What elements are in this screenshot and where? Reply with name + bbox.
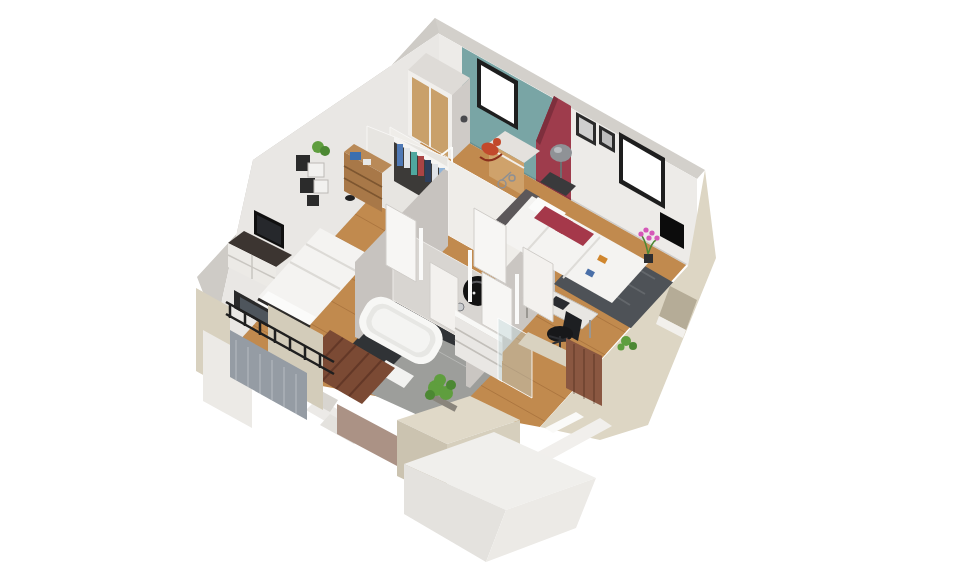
- door-post-1: [419, 228, 423, 280]
- shoes: [345, 195, 355, 201]
- floorplan-svg: [0, 0, 960, 576]
- small-toy: [461, 116, 468, 123]
- white-books: [363, 159, 371, 165]
- floorplan-render: [0, 0, 960, 576]
- horse-head: [493, 138, 501, 146]
- lower-block-left: [337, 404, 397, 466]
- wardrobe-door-left: [412, 77, 429, 146]
- lamp-highlight: [554, 147, 562, 153]
- wardrobe-door-right: [431, 88, 448, 157]
- door-post-2: [468, 250, 472, 302]
- lamp-shade: [550, 144, 572, 162]
- orchid-pot: [644, 254, 653, 263]
- blue-box: [350, 152, 361, 160]
- mirror-sparkle: [473, 292, 476, 295]
- door-post-3: [515, 274, 519, 324]
